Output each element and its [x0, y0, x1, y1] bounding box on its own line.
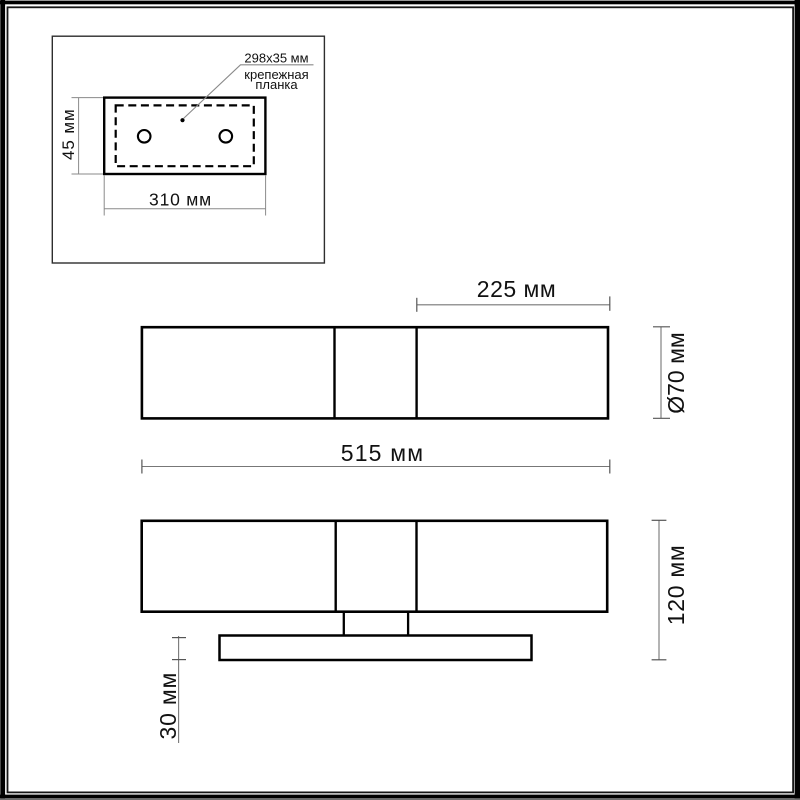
- svg-text:45 мм: 45 мм: [59, 108, 78, 160]
- svg-text:225 мм: 225 мм: [477, 276, 556, 302]
- svg-text:515 мм: 515 мм: [341, 440, 425, 466]
- svg-text:120 мм: 120 мм: [663, 545, 689, 626]
- svg-text:30 мм: 30 мм: [155, 672, 181, 740]
- svg-text:298x35 мм: 298x35 мм: [244, 50, 308, 65]
- svg-text:Ø70 мм: Ø70 мм: [663, 332, 689, 414]
- svg-text:планка: планка: [255, 77, 298, 92]
- svg-text:310 мм: 310 мм: [149, 190, 212, 210]
